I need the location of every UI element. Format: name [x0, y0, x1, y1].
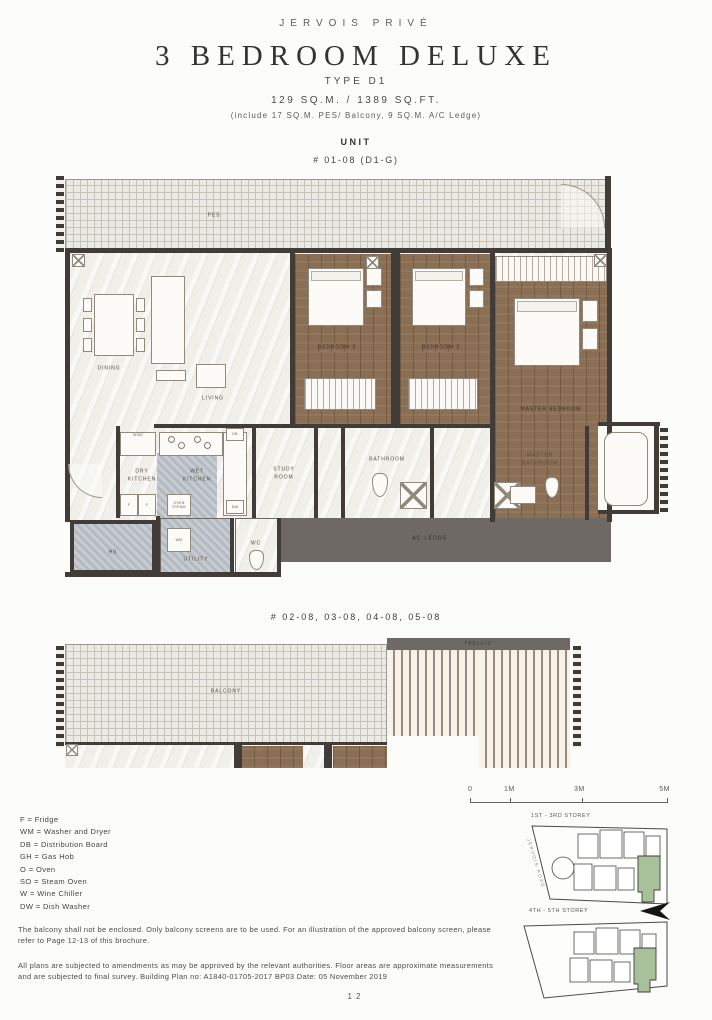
wine-chiller-label: WINE	[121, 433, 155, 437]
dining-chair	[83, 338, 92, 352]
fridge: F	[138, 494, 156, 516]
side-table	[366, 268, 382, 286]
legend-item: F = Fridge	[20, 814, 111, 826]
scale-tick	[582, 798, 583, 803]
side-table	[366, 290, 382, 308]
wall	[391, 248, 400, 428]
ac-ledge-label: AC LEDGE	[412, 535, 448, 543]
side-table	[582, 328, 598, 350]
wall	[324, 742, 332, 768]
wall	[65, 248, 70, 522]
trellis-boundary-fence	[573, 646, 581, 748]
wall	[290, 424, 495, 428]
wall	[598, 422, 660, 426]
wall	[154, 424, 294, 428]
dishwasher: DW	[226, 500, 244, 514]
shower	[400, 482, 427, 509]
wall	[230, 518, 234, 574]
wine-chiller: WINE	[120, 432, 156, 456]
brand-name: JERVOIS PRIVÉ	[0, 18, 712, 29]
wall	[65, 742, 387, 745]
wall	[65, 248, 612, 253]
legend-item: DW = Dish Washer	[20, 901, 111, 913]
gas-hob-burner	[168, 436, 175, 443]
unit-label: UNIT	[0, 137, 712, 147]
pillows	[311, 271, 361, 281]
balcony-note: The balcony shall not be enclosed. Only …	[18, 924, 496, 946]
right-boundary-fence	[660, 428, 668, 512]
trellis-slats	[479, 650, 570, 768]
trellis-slats	[387, 650, 479, 736]
legend-item: GH = Gas Hob	[20, 851, 111, 863]
dry-kitchen-label: DRY KITCHEN	[123, 469, 161, 484]
unit-area-note: (include 17 SQ.M. PES/ Balcony, 9 SQ.M. …	[0, 111, 712, 120]
wall	[341, 426, 345, 518]
study-room-label: STUDY ROOM	[265, 467, 303, 482]
legend-item: SO = Steam Oven	[20, 876, 111, 888]
appliance-legend: F = Fridge WM = Washer and Dryer DB = Di…	[20, 814, 111, 913]
wardrobe	[408, 378, 478, 410]
scale-tick-label: 5M	[659, 786, 670, 793]
keymap1-site-plan	[518, 822, 670, 908]
side-table	[582, 300, 598, 322]
wall	[585, 426, 589, 520]
dining-chair	[83, 298, 92, 312]
scale-tick	[667, 798, 668, 803]
scale-tick-label: 3M	[574, 786, 585, 793]
pes-floor	[65, 179, 610, 250]
legend-item: W = Wine Chiller	[20, 888, 111, 900]
scale-line	[470, 802, 668, 803]
living-label: LIVING	[202, 395, 224, 403]
master-bedroom-label: MASTER BEDROOM	[521, 406, 582, 414]
dining-chair	[83, 318, 92, 332]
wall	[490, 248, 495, 522]
kitchen-island	[151, 276, 185, 364]
master-bathroom-label: MASTER BATHROOM	[521, 453, 559, 468]
column-marker	[594, 254, 607, 267]
interior-cutoff-bedroom	[241, 746, 303, 768]
scale-tick	[510, 798, 511, 803]
gas-hob-burner	[178, 442, 185, 449]
hs-label: HS	[109, 549, 118, 557]
column-marker	[72, 254, 85, 267]
wall	[290, 248, 295, 428]
distribution-board: DB	[226, 428, 244, 441]
legend-item: O = Oven	[20, 864, 111, 876]
legend-item: WM = Washer and Dryer	[20, 826, 111, 838]
page-title: 3 BEDROOM DELUXE	[0, 40, 712, 73]
unit-type: TYPE D1	[0, 76, 712, 87]
wall	[234, 742, 242, 768]
side-table	[469, 268, 484, 286]
plan2-heading: # 02-08, 03-08, 04-08, 05-08	[0, 612, 712, 622]
unit-number: # 01-08 (D1-G)	[0, 155, 712, 165]
wall	[277, 518, 281, 574]
oven-steam-oven: OVEN STEAM	[167, 494, 191, 516]
bedroom2-label: BEDROOM 2	[422, 344, 460, 352]
wet-kitchen-label: WET KITCHEN	[178, 469, 216, 484]
scale-bar: 0 1M 3M 5M	[470, 786, 668, 808]
fridge: F	[120, 494, 138, 516]
dining-table	[94, 294, 134, 356]
hs-floor	[70, 520, 156, 574]
wc-label: WC	[251, 540, 261, 548]
dining-label: DINING	[98, 365, 121, 373]
keymap2-site-plan	[516, 918, 670, 1002]
utility-label: UTILITY	[184, 556, 209, 564]
sofa	[196, 364, 226, 388]
trellis-label: TRELLIS	[464, 641, 491, 648]
master-wardrobe	[495, 256, 607, 282]
floor-plan-unit-01-08: AC LEDGE BEDROOM 3	[56, 176, 668, 600]
wall	[156, 516, 160, 574]
disclaimer-note: All plans are subjected to amendments as…	[18, 960, 496, 982]
bathroom-label: BATHROOM	[369, 456, 405, 464]
gas-hob-burner	[194, 436, 201, 443]
bathtub	[604, 432, 648, 506]
pillows	[415, 271, 463, 281]
dining-chair	[136, 338, 145, 352]
wall	[598, 510, 659, 514]
unit-area: 129 SQ.M. / 1389 SQ.FT.	[0, 95, 712, 106]
wall	[65, 572, 281, 577]
tv-console	[156, 370, 186, 381]
bedroom3-label: BEDROOM 3	[318, 344, 356, 352]
dining-chair	[136, 318, 145, 332]
side-table	[469, 290, 484, 308]
pes-label: PES	[208, 212, 221, 220]
dining-chair	[136, 298, 145, 312]
interior-cutoff-bedroom	[333, 746, 387, 768]
pes-boundary-fence	[56, 176, 64, 252]
wall	[314, 426, 318, 518]
wall	[252, 426, 256, 518]
keymap1-storey-label: 1ST - 3RD STOREY	[531, 813, 591, 819]
gas-hob-burner	[204, 442, 211, 449]
keymap2-storey-label: 4TH - 5TH STOREY	[529, 908, 588, 914]
wall	[654, 422, 659, 514]
pillows	[517, 301, 577, 312]
scale-tick	[470, 798, 471, 803]
column-marker	[66, 744, 78, 756]
balcony-label: BALCONY	[211, 688, 241, 696]
wall	[605, 176, 611, 250]
wall	[430, 426, 434, 518]
floor-plan-units-02-05: BALCONY TRELLIS	[56, 638, 668, 768]
vanity	[510, 486, 536, 504]
scale-tick-label: 0	[468, 786, 472, 793]
legend-item: DB = Distribution Board	[20, 839, 111, 851]
washer-dryer: WM	[167, 528, 191, 552]
scale-tick-label: 1M	[504, 786, 515, 793]
balcony-boundary-fence	[56, 646, 64, 748]
wardrobe	[304, 378, 376, 410]
